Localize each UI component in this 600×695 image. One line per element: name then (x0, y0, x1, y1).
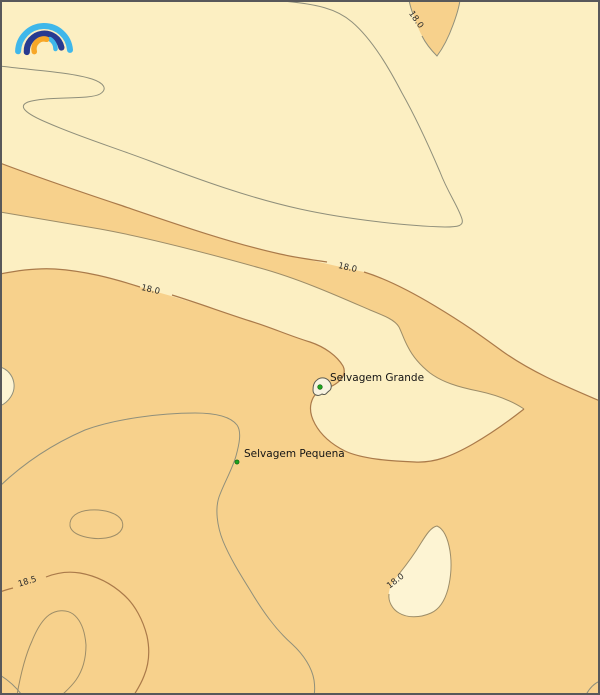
island-label-pequena: Selvagem Pequena (244, 448, 345, 460)
sea-temperature-contour-plot: Selvagem Grande Selvagem Pequena 18.0 18… (0, 0, 600, 695)
island-label-grande: Selvagem Grande (330, 372, 424, 384)
island-marker-pequena (235, 460, 239, 464)
island-marker-grande (318, 385, 323, 390)
contour-map: Selvagem Grande Selvagem Pequena 18.0 18… (0, 0, 600, 695)
